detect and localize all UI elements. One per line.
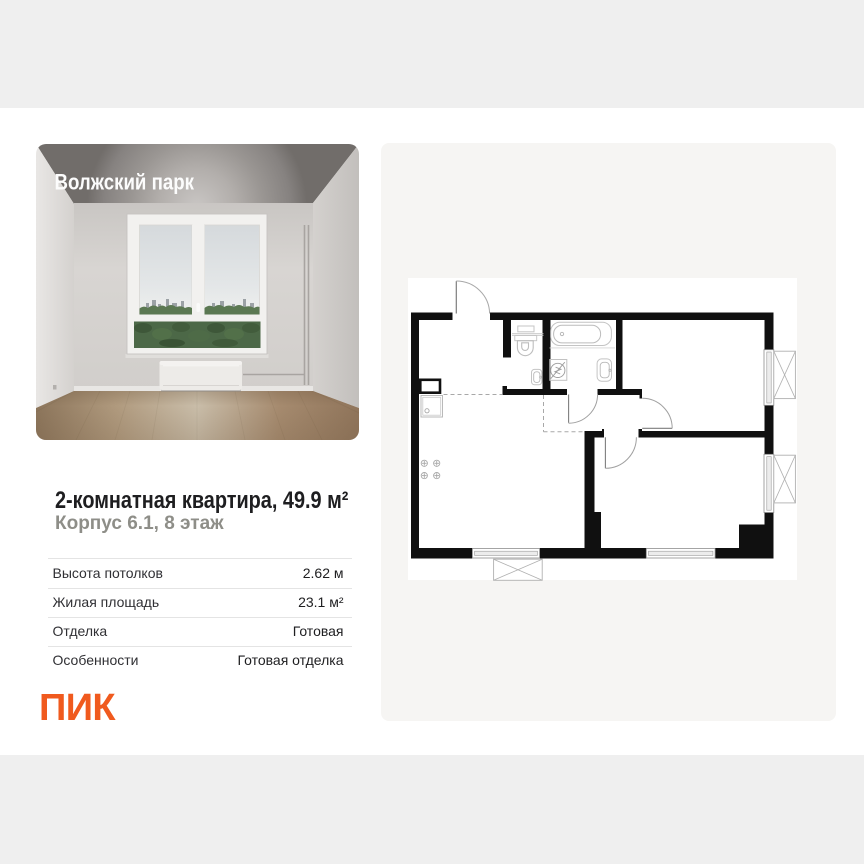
svg-text:Волжский парк: Волжский парк [55, 170, 195, 195]
